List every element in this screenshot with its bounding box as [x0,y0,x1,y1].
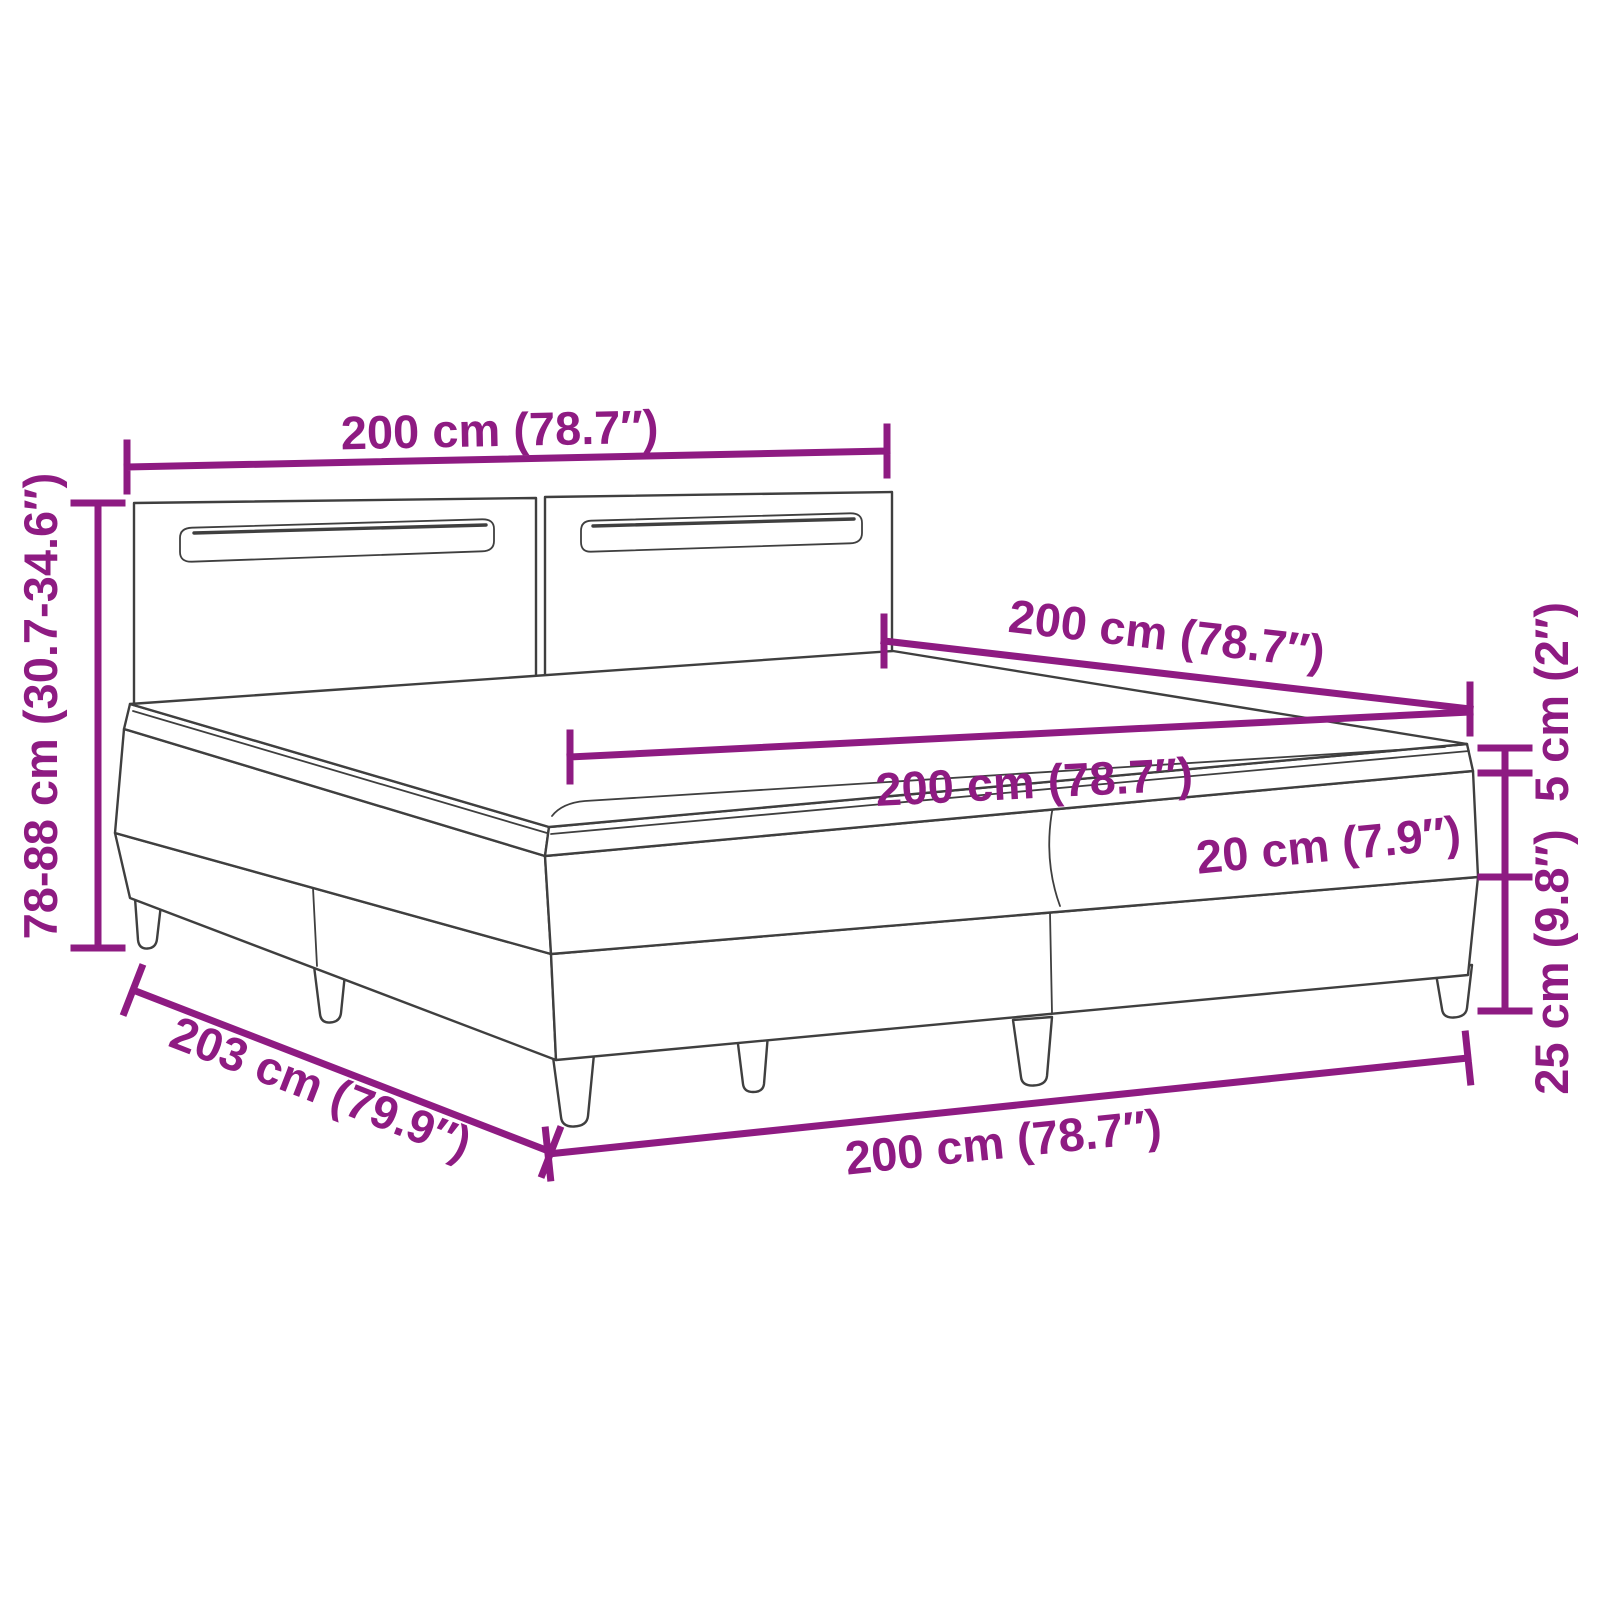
dim-right-height-chain: 5 cm (2″) 25 cm (9.8″) [1481,602,1578,1095]
leg-front-corner [553,1054,594,1127]
leg-foot-middle [1013,1017,1052,1086]
dim-headboard-width: 200 cm (78.7″) [127,400,887,491]
dim-total-height-line [74,503,122,948]
dim-base-width-label: 200 cm (78.7″) [842,1099,1164,1185]
dim-total-length-label: 203 cm (79.9″) [163,1005,478,1169]
dim-base-height-label: 25 cm (9.8″) [1525,829,1578,1094]
dim-total-height-label: 78-88 cm (30.7-34.6″) [14,473,67,940]
diagram-svg: 200 cm (78.7″) 78-88 cm (30.7-34.6″) 200… [0,0,1600,1600]
dim-right-height-chain-line [1481,748,1529,1011]
dim-base-width: 200 cm (78.7″) [546,1034,1471,1184]
bed-dimension-diagram: 200 cm (78.7″) 78-88 cm (30.7-34.6″) 200… [0,0,1600,1600]
dim-bed-depth-label: 200 cm (78.7″) [1006,589,1328,678]
dim-topper-height-label: 5 cm (2″) [1525,602,1578,802]
dim-headboard-width-label: 200 cm (78.7″) [340,400,659,460]
dim-total-height: 78-88 cm (30.7-34.6″) [14,473,122,948]
